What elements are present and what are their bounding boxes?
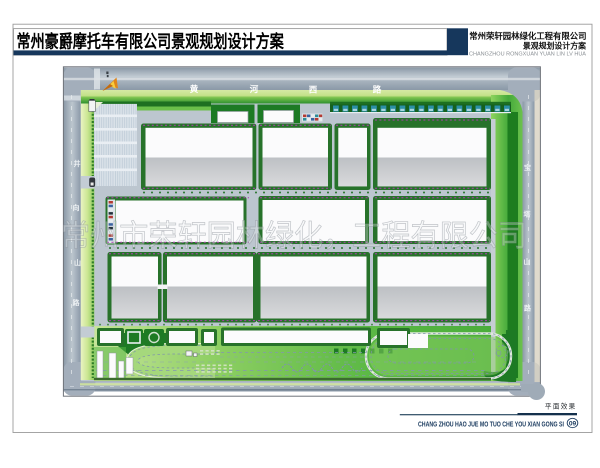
svg-text:CHANGZHOU RONGXUAN YUAN LIN LV: CHANGZHOU RONGXUAN YUAN LIN LV HUA xyxy=(469,51,586,57)
svg-text:路: 路 xyxy=(73,298,81,307)
svg-text:路: 路 xyxy=(524,304,532,313)
svg-text:平面效果: 平面效果 xyxy=(545,402,577,411)
svg-text:塔: 塔 xyxy=(524,210,532,219)
svg-text:CHANG ZHOU HAO JUE MO TUO CHE: CHANG ZHOU HAO JUE MO TUO CHE YOU XIAN G… xyxy=(418,421,564,428)
svg-text:西: 西 xyxy=(309,85,318,95)
svg-text:山: 山 xyxy=(74,258,81,267)
svg-text:09: 09 xyxy=(569,420,577,427)
svg-text:宝: 宝 xyxy=(524,163,531,172)
svg-text:黄: 黄 xyxy=(190,84,199,94)
svg-text:常州豪爵摩托车有限公司景观规划设计方案: 常州豪爵摩托车有限公司景观规划设计方案 xyxy=(17,31,285,52)
svg-text:常州市荣轩园林绿化，工程有限公司: 常州市荣轩园林绿化，工程有限公司 xyxy=(61,220,527,253)
svg-text:常州荣轩园林绿化工程有限公司: 常州荣轩园林绿化工程有限公司 xyxy=(469,31,586,41)
svg-text:井: 井 xyxy=(74,159,81,168)
svg-text:向: 向 xyxy=(73,203,80,212)
svg-text:景观规划设计方案: 景观规划设计方案 xyxy=(523,41,586,51)
svg-text:路: 路 xyxy=(373,85,382,95)
svg-text:河: 河 xyxy=(250,84,259,94)
svg-text:山: 山 xyxy=(524,257,531,266)
